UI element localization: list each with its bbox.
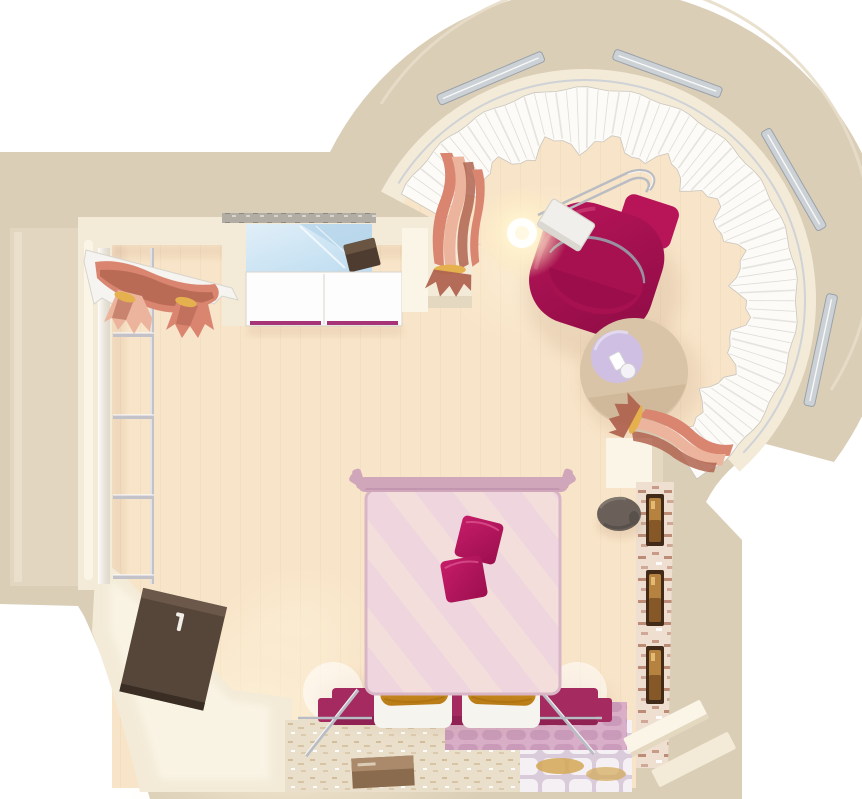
niche-glint [651, 501, 655, 509]
lamp-bulb-core [515, 226, 529, 240]
niche-glint [651, 653, 655, 661]
rug-gold-blob-1 [536, 758, 584, 774]
wardrobe-right-pillar [402, 228, 428, 312]
floor-glow-left [210, 560, 390, 680]
wardrobe-floor-shadow [248, 326, 402, 335]
niche-contents-shade [649, 675, 661, 700]
wardrobe-left-pillar [222, 223, 246, 326]
curtain-pleat [587, 88, 588, 148]
door-panel-highlight [14, 232, 22, 582]
niche-contents-shade [649, 520, 661, 542]
magenta-cushion-2 [440, 555, 489, 604]
display-niches [646, 494, 664, 704]
tray-sphere [621, 364, 636, 379]
niche-contents-shade [649, 598, 661, 622]
wardrobe-magenta-trim-right [327, 321, 398, 325]
vase [597, 497, 641, 531]
wardrobe-back-shelf [222, 213, 376, 223]
wardrobe-magenta-trim-left [250, 321, 321, 325]
floorplan-render [0, 0, 862, 799]
niche-glint [651, 577, 655, 585]
rug-gold-blob-2 [586, 767, 626, 781]
floorplan-svg [0, 0, 862, 799]
bay-left-pillar-shade [428, 296, 472, 308]
book-on-rug [351, 755, 414, 788]
